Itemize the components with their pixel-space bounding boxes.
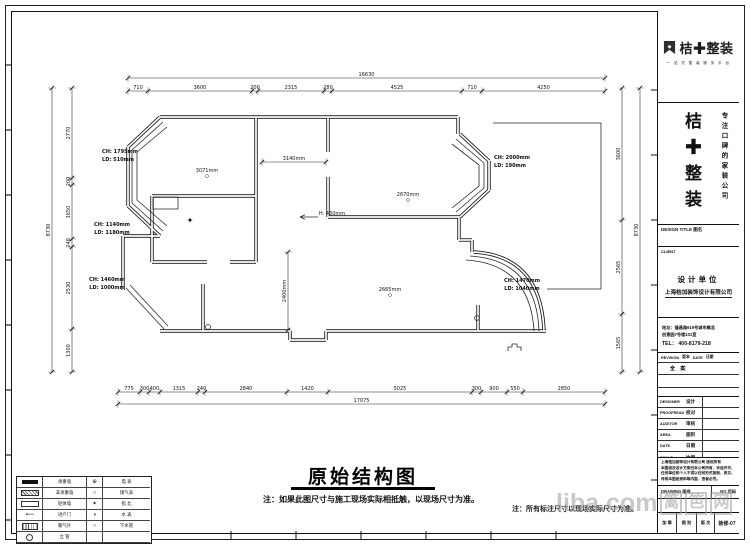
legend-label: 立 管 bbox=[43, 532, 87, 543]
dimension-label: 1650 bbox=[66, 206, 72, 219]
address-line2: 创意园7号楼101室 bbox=[662, 332, 735, 339]
lg-open-icon bbox=[21, 501, 39, 507]
label-marker bbox=[406, 198, 410, 202]
dimension-label: 17075 bbox=[354, 398, 370, 404]
brand-vertical-section: 桔✚整装 专注口碑的家装公司 bbox=[658, 103, 739, 225]
brand-logo-text: 桔✚整装 bbox=[679, 38, 733, 57]
dimension-label: 900 bbox=[489, 386, 499, 392]
room-label: 2665mm bbox=[379, 287, 402, 293]
legend-label bbox=[103, 532, 150, 543]
client-label: CLIENT bbox=[661, 249, 675, 254]
main-note: 注：如果此图尺寸与施工现场实际相抵触，以现场尺寸为准。 bbox=[263, 494, 479, 505]
wall-lines bbox=[123, 117, 546, 340]
drawing-title: 原始结构图 bbox=[272, 462, 454, 489]
legend-label: 水 表 bbox=[103, 510, 150, 521]
legend-symbol: ⊕ bbox=[87, 477, 103, 488]
dimension-label: 2840 bbox=[240, 386, 253, 392]
title-underline bbox=[291, 487, 435, 490]
flag-icon bbox=[663, 40, 676, 55]
brand-name-vertical: 桔✚整装 bbox=[679, 112, 704, 216]
legend-symbol: ○ bbox=[87, 521, 103, 532]
info-value bbox=[702, 419, 739, 429]
info-label-cn: 设计 bbox=[686, 399, 702, 405]
info-row: AREA面积 bbox=[658, 430, 739, 441]
label-marker bbox=[205, 174, 209, 178]
revision-header-cell: 日期 bbox=[703, 355, 714, 360]
dimension-label: 3600 bbox=[616, 148, 622, 161]
lg-hatch-icon bbox=[21, 490, 39, 496]
dimension-label: 240 bbox=[197, 386, 207, 392]
dimension-label: 2565 bbox=[616, 261, 622, 274]
legend-label: 非承重墙 bbox=[43, 488, 87, 499]
brand-logo: 桔✚整装 bbox=[658, 38, 739, 57]
company-name: 上海桔加装饰设计有限公司 bbox=[665, 288, 732, 298]
revision-value: 全 案 bbox=[658, 365, 687, 372]
legend-table: 承重墙⊕电 表非承重墙○煤气表轻体墙✦指 北⟵进户门◑水 表暖气片○下水管立 管 bbox=[16, 476, 152, 544]
info-label-en: DESIGNER bbox=[660, 400, 686, 404]
legend-symbol bbox=[17, 477, 43, 488]
brand-slogan-vertical: 专注口碑的家装公司 bbox=[718, 112, 728, 202]
room-labels: CH: 1795mmLD: 510mm3071mm2670mmCH: 2000m… bbox=[89, 149, 540, 297]
dimension-label: 8730 bbox=[634, 224, 640, 237]
label-marker bbox=[388, 293, 392, 297]
info-rows: DESIGNER设计PROOFREAD校对AUDITOR审核AREA面积DATE… bbox=[658, 397, 739, 458]
legend-label: 煤气表 bbox=[103, 488, 150, 499]
dimension-label: 2400mm bbox=[282, 280, 288, 303]
logo-section: 桔✚整装 一 站 式 整 装 服 务 平 台 bbox=[658, 11, 739, 103]
info-row: AUDITOR审核 bbox=[658, 419, 739, 430]
legend-symbol bbox=[87, 532, 103, 543]
room-label: 2670mm bbox=[397, 192, 420, 198]
address-section: 地址：隆昌路619号城市概念 创意园7号楼101室 TEL： 400-8179-… bbox=[658, 318, 739, 353]
design-title-row: DESIGN TITLE 图名 bbox=[658, 225, 739, 247]
lg-pipe-icon bbox=[26, 534, 33, 541]
watermark-boxed-char: 网 bbox=[710, 492, 732, 514]
info-row: DESIGNER设计 bbox=[658, 397, 739, 408]
client-section: CLIENT 设计单位 上海桔加装饰设计有限公司 bbox=[658, 247, 739, 318]
dimension-label: 1300 bbox=[66, 344, 72, 357]
room-label: CH: 1795mm bbox=[102, 149, 138, 155]
info-label-cn: 审核 bbox=[686, 421, 702, 427]
info-row: DATE日期 bbox=[658, 441, 739, 452]
dimension-label: 3140mm bbox=[283, 156, 306, 162]
lg-solid-icon bbox=[22, 480, 38, 484]
dimension-label: 775 bbox=[124, 386, 134, 392]
room-label: CH: 2000mm bbox=[494, 155, 530, 161]
dimension-label: 200 bbox=[250, 85, 260, 91]
watermark-text: liba.com bbox=[556, 489, 657, 518]
dimension-label: 710 bbox=[133, 85, 143, 91]
revision-header-cell: DATE bbox=[690, 356, 703, 360]
revision-row: 全 案 bbox=[658, 363, 739, 375]
legend-symbol: ✦ bbox=[87, 499, 103, 510]
info-label-en: AUDITOR bbox=[660, 422, 686, 426]
dimension-label: 240 bbox=[66, 238, 72, 248]
dimension-label: 4525 bbox=[391, 85, 404, 91]
legend-symbol: ⟵ bbox=[17, 510, 43, 521]
watermark: liba.com 篱 笆 网 bbox=[556, 489, 732, 518]
legend-label: 承重墙 bbox=[43, 477, 87, 488]
legend-label: 轻体墙 bbox=[43, 499, 87, 510]
info-label-cn: 面积 bbox=[686, 432, 702, 438]
watermark-boxed-char: 篱 bbox=[660, 492, 682, 514]
dimension-label: 2770 bbox=[66, 127, 72, 140]
dimension-label: 1315 bbox=[173, 386, 186, 392]
revision-table: REVISION版本DATE日期全 案 bbox=[658, 353, 739, 397]
dimension-lines: 1663071036002002315280452571042507753004… bbox=[46, 72, 644, 408]
title-block-sidebar: 桔✚整装 一 站 式 整 装 服 务 平 台 桔✚整装 专注口碑的家装公司 DE… bbox=[657, 11, 739, 533]
legend-label: 指 北 bbox=[103, 499, 150, 510]
dimension-label: 1565 bbox=[616, 337, 622, 350]
legend-label: 电 表 bbox=[103, 477, 150, 488]
dimension-label: 200 bbox=[66, 177, 72, 187]
room-label: 3071mm bbox=[196, 168, 219, 174]
dimension-label: 2530 bbox=[66, 282, 72, 295]
info-label-en: DATE bbox=[660, 444, 686, 448]
dimension-label: 2315 bbox=[285, 85, 298, 91]
room-label: LD: 1000mm bbox=[89, 285, 124, 291]
legend-label: 下水管 bbox=[103, 521, 150, 532]
info-label-cn: 校对 bbox=[686, 410, 702, 416]
dimension-label: 400 bbox=[150, 386, 160, 392]
revision-header-cell: REVISION bbox=[658, 356, 679, 360]
wall-inner-lines bbox=[123, 117, 546, 340]
room-label: CH: 1140mm bbox=[94, 222, 130, 228]
legend-symbol: ◑ bbox=[87, 510, 103, 521]
dimension-label: 1420 bbox=[301, 386, 314, 392]
lg-rad-icon bbox=[22, 523, 38, 530]
legend-symbol bbox=[17, 532, 43, 543]
info-value bbox=[702, 430, 739, 440]
room-label: LD: 1040mm bbox=[504, 286, 539, 292]
brand-tagline: 一 站 式 整 装 服 务 平 台 bbox=[658, 61, 739, 66]
room-label: ✦ bbox=[187, 216, 194, 225]
dimension-label: 300 bbox=[472, 386, 482, 392]
room-label: LD: 190mm bbox=[494, 163, 526, 169]
dimension-label: 550 bbox=[510, 386, 520, 392]
dimension-label: 280 bbox=[323, 85, 333, 91]
info-label-en: PROOFREAD bbox=[660, 411, 686, 415]
revision-row bbox=[658, 388, 739, 397]
dimension-label: 3600 bbox=[194, 85, 207, 91]
watermark-boxed-char: 笆 bbox=[685, 492, 707, 514]
info-label-cn: 日期 bbox=[686, 443, 702, 449]
info-label-en: AREA bbox=[660, 433, 686, 437]
legend-label: 暖气片 bbox=[43, 521, 87, 532]
telephone: TEL： 400-8179-218 bbox=[662, 340, 735, 348]
legend-symbol bbox=[17, 521, 43, 532]
lg-door-icon: ⟵ bbox=[25, 512, 34, 518]
copyright-notes: 上海桔加装饰设计有限公司 版权所有本图纸及设计方案归本公司所有，未经许可，任何单… bbox=[658, 458, 739, 486]
dimension-label: 2850 bbox=[558, 386, 571, 392]
address-line1: 地址：隆昌路619号城市概念 bbox=[662, 325, 735, 332]
info-value bbox=[702, 397, 739, 407]
dimension-label: 710 bbox=[467, 85, 477, 91]
revision-row bbox=[658, 375, 739, 387]
legend-label: 进户门 bbox=[43, 510, 87, 521]
revision-header: REVISION版本DATE日期 bbox=[658, 353, 739, 363]
design-title-label: DESIGN TITLE 图名 bbox=[661, 227, 702, 232]
room-label: CH: 1470mm bbox=[504, 278, 540, 284]
dimension-label: 5025 bbox=[394, 386, 407, 392]
room-label: H: 430mm bbox=[319, 211, 345, 217]
revision-header-cell: 版本 bbox=[679, 355, 690, 360]
design-unit-label: 设计单位 bbox=[658, 274, 739, 285]
drawing-sheet: 1663071036002002315280452571042507753004… bbox=[0, 0, 750, 545]
legend-symbol bbox=[17, 488, 43, 499]
dimension-label: 16630 bbox=[359, 72, 375, 78]
copyright-line: 传阅本图纸资料等内容，违者必究。 bbox=[661, 477, 736, 483]
copyright-line: 任何单位和个人不得以任何形式复制、拷贝、 bbox=[661, 471, 736, 477]
info-value bbox=[702, 408, 739, 418]
room-label: CH: 1460mm bbox=[89, 277, 125, 283]
legend-symbol bbox=[17, 499, 43, 510]
dimension-label: 8730 bbox=[46, 224, 52, 237]
room-label: LD: 1180mm bbox=[94, 230, 129, 236]
info-value bbox=[702, 441, 739, 451]
dimension-label: 300 bbox=[140, 386, 150, 392]
dimension-label: 4250 bbox=[537, 85, 550, 91]
room-label: LD: 510mm bbox=[102, 157, 134, 163]
legend-symbol: ○ bbox=[87, 488, 103, 499]
info-row: PROOFREAD校对 bbox=[658, 408, 739, 419]
